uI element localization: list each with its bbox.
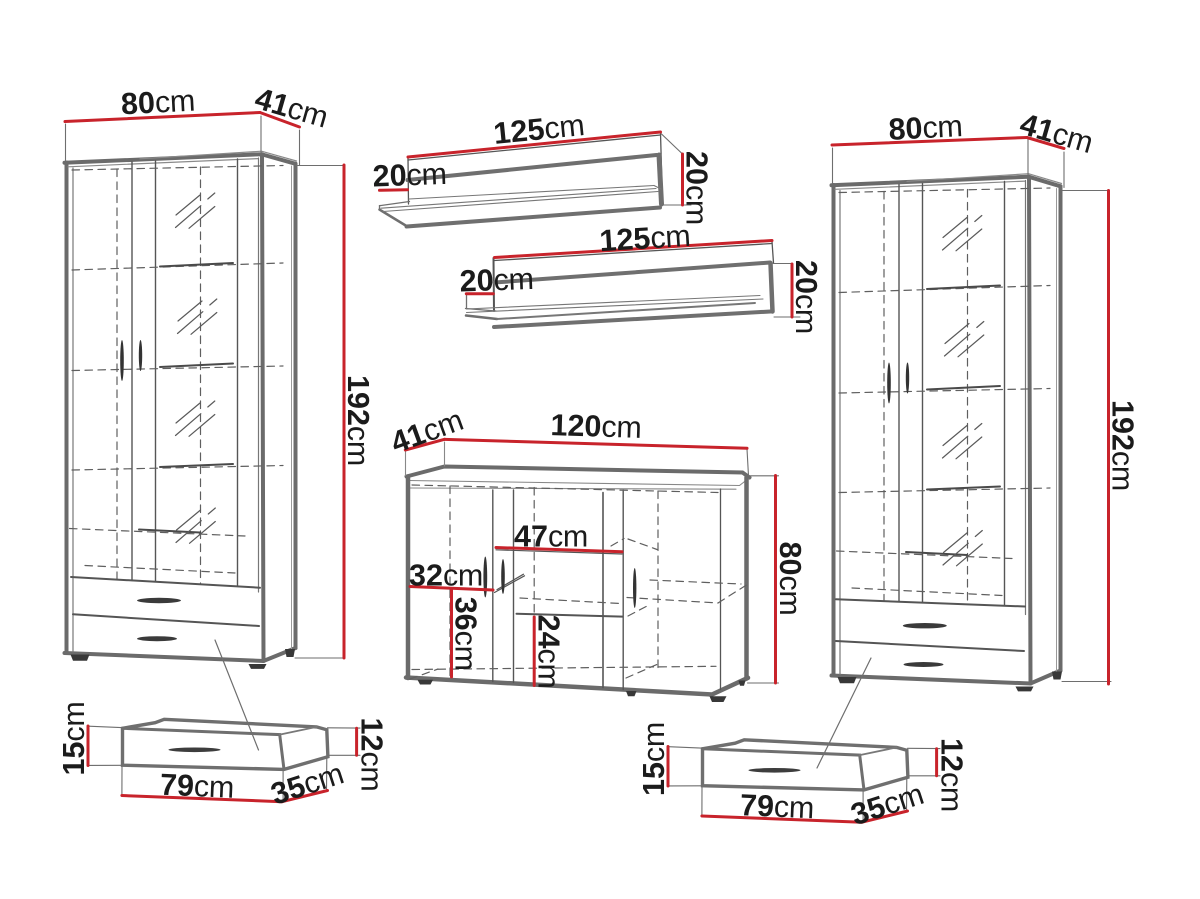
svg-text:20cm: 20cm: [789, 260, 823, 334]
svg-text:80cm: 80cm: [888, 109, 964, 147]
svg-text:32cm: 32cm: [409, 559, 483, 593]
svg-text:80cm: 80cm: [120, 84, 196, 122]
svg-text:192cm: 192cm: [341, 375, 375, 466]
svg-text:12cm: 12cm: [355, 718, 389, 792]
svg-text:15cm: 15cm: [57, 702, 91, 776]
svg-text:80cm: 80cm: [773, 542, 807, 616]
svg-text:36cm: 36cm: [449, 597, 483, 671]
svg-text:15cm: 15cm: [637, 722, 671, 796]
svg-text:20cm: 20cm: [459, 262, 534, 299]
svg-text:20cm: 20cm: [680, 151, 714, 225]
svg-text:47cm: 47cm: [514, 520, 588, 554]
svg-text:192cm: 192cm: [1106, 400, 1140, 491]
svg-text:120cm: 120cm: [550, 408, 642, 445]
svg-text:79cm: 79cm: [739, 788, 814, 825]
svg-text:12cm: 12cm: [935, 738, 969, 812]
svg-text:24cm: 24cm: [532, 615, 566, 689]
svg-text:125cm: 125cm: [599, 219, 692, 258]
svg-text:79cm: 79cm: [159, 768, 234, 805]
svg-text:20cm: 20cm: [372, 157, 447, 194]
